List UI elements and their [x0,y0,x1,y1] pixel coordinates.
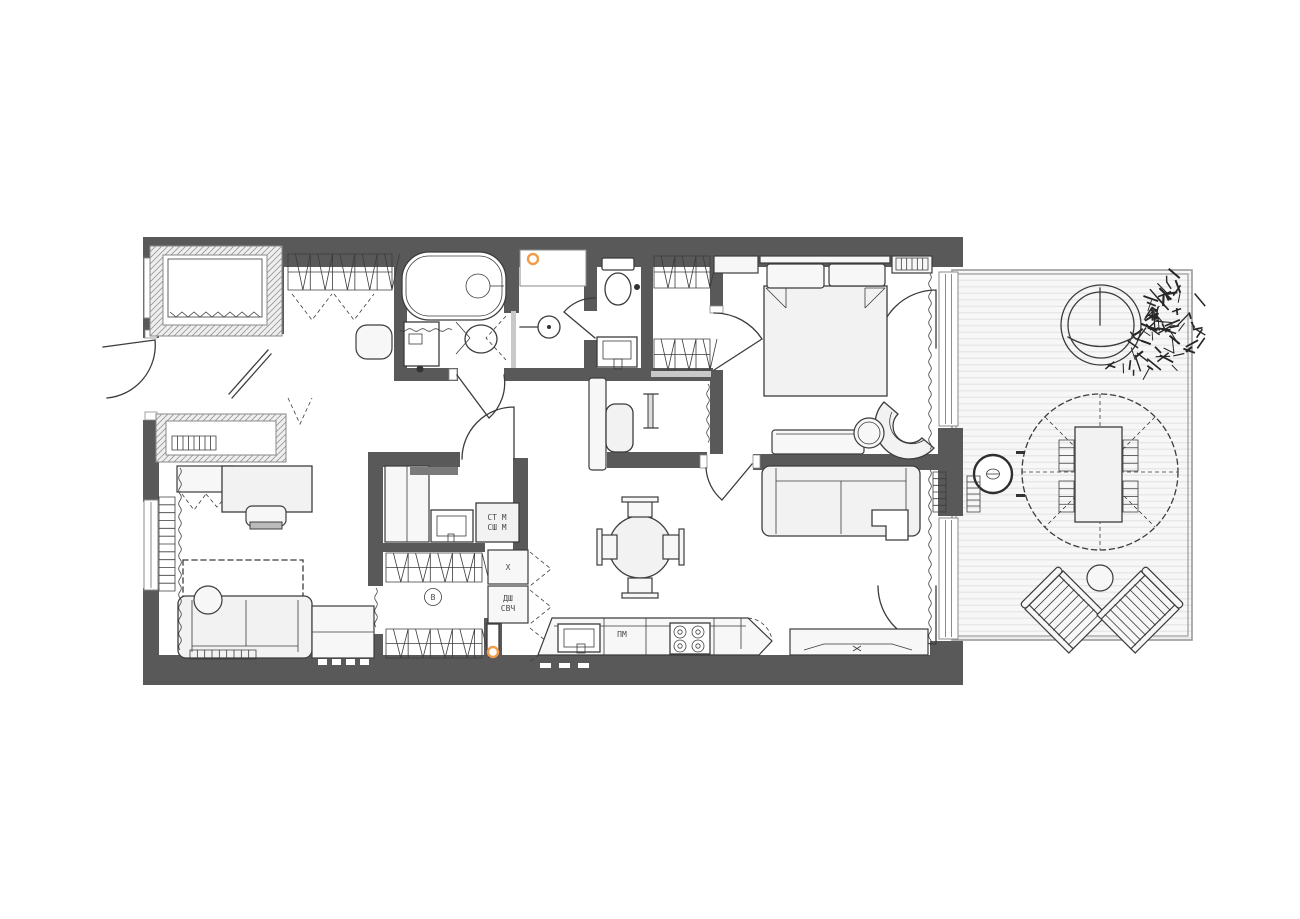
washer-label: СТ М [487,513,506,522]
left-room [177,466,374,658]
microwave-label: СВЧ [501,604,516,613]
floor-plan-canvas: СТ М СШ М В Х ДШ СВЧ ПМ [0,0,1300,919]
pillow-right [829,264,885,286]
bathroom [402,252,506,373]
console-seat [606,404,633,452]
outdoor-table [1075,427,1122,522]
utility-door-arc [462,407,514,459]
round-side-table [854,418,884,448]
bedroom [714,256,934,459]
vent-label: В [431,593,436,602]
hob [670,623,710,654]
boiler-indicator-icon [528,254,538,264]
headboard [760,256,890,263]
floor-plan: СТ М СШ М В Х ДШ СВЧ ПМ [0,0,1300,919]
bedroom-terrace-glazing [939,272,958,426]
toilet-bowl [605,273,631,305]
entry-storage [156,398,312,462]
insulated-loggia [150,246,282,336]
dryer-label: СШ М [487,523,506,532]
tv-console [790,629,928,655]
living-door-arc [706,464,752,500]
kitchen-orange-indicator-icon [488,647,498,657]
entry-second-leaf [229,350,271,398]
terrace [952,269,1205,653]
desk [222,466,312,512]
washer-dryer-stack: СТ М СШ М [476,503,519,542]
shower-room [520,250,586,338]
bed-mattress [764,286,887,396]
fridge-cabinet: Х [488,550,528,584]
bedroom-door-arc [714,313,762,370]
wardrobe-bifold-doors [292,294,374,320]
closet-sliding-front [651,371,711,377]
oven-microwave-cabinet: ДШ СВЧ [488,586,528,623]
wc [597,258,640,369]
utility-shelf [410,467,458,475]
bath-sink [465,325,497,353]
fridge-label: Х [506,563,511,572]
living-terrace-glazing [939,518,958,639]
dishwasher-label: ПМ [617,630,627,639]
toilet-tank [602,258,634,270]
storage-door-fold [288,398,312,424]
bathroom-door-arc [457,375,505,418]
pillow-left [767,264,824,288]
bath-glass-screen [511,311,516,368]
hall-stool [356,325,392,359]
console-cabinet [589,378,606,470]
dining-table [609,516,671,578]
walk-in-closet: В [425,589,442,606]
round-pillow [194,586,222,614]
kitchen-sink [558,624,600,653]
outdoor-side-table [1087,565,1113,591]
living-room [762,466,928,655]
nightstand-left [714,256,758,273]
entry-door-arc [103,340,155,398]
dining-area [597,497,684,598]
wall-mirror [648,394,653,428]
utility-room: СТ М СШ М [385,466,519,542]
oven-label: ДШ [503,594,513,603]
